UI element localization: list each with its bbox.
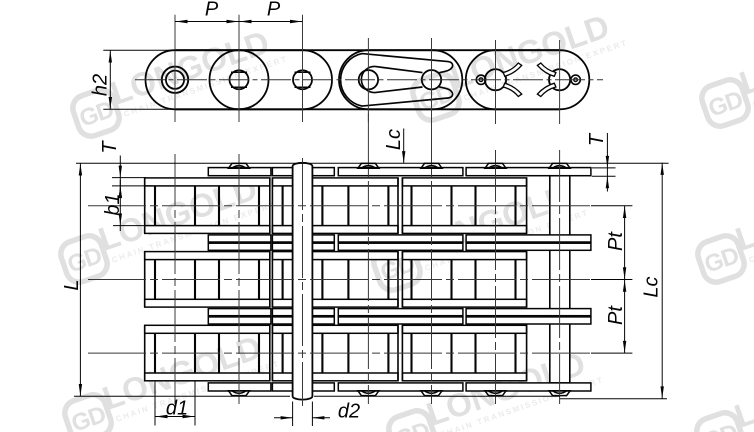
svg-text:Lc: Lc	[383, 129, 405, 150]
svg-text:b1: b1	[102, 193, 124, 215]
svg-text:P: P	[267, 0, 281, 21]
svg-text:d2: d2	[338, 401, 360, 423]
svg-text:Pt: Pt	[605, 305, 627, 325]
svg-text:L: L	[61, 279, 83, 290]
svg-text:T: T	[99, 140, 121, 154]
svg-text:P: P	[205, 0, 219, 21]
svg-text:T: T	[586, 132, 608, 146]
svg-text:Pt: Pt	[605, 231, 627, 251]
svg-text:d1: d1	[166, 398, 188, 420]
svg-text:Lc: Lc	[641, 276, 663, 297]
svg-text:h2: h2	[90, 74, 112, 96]
